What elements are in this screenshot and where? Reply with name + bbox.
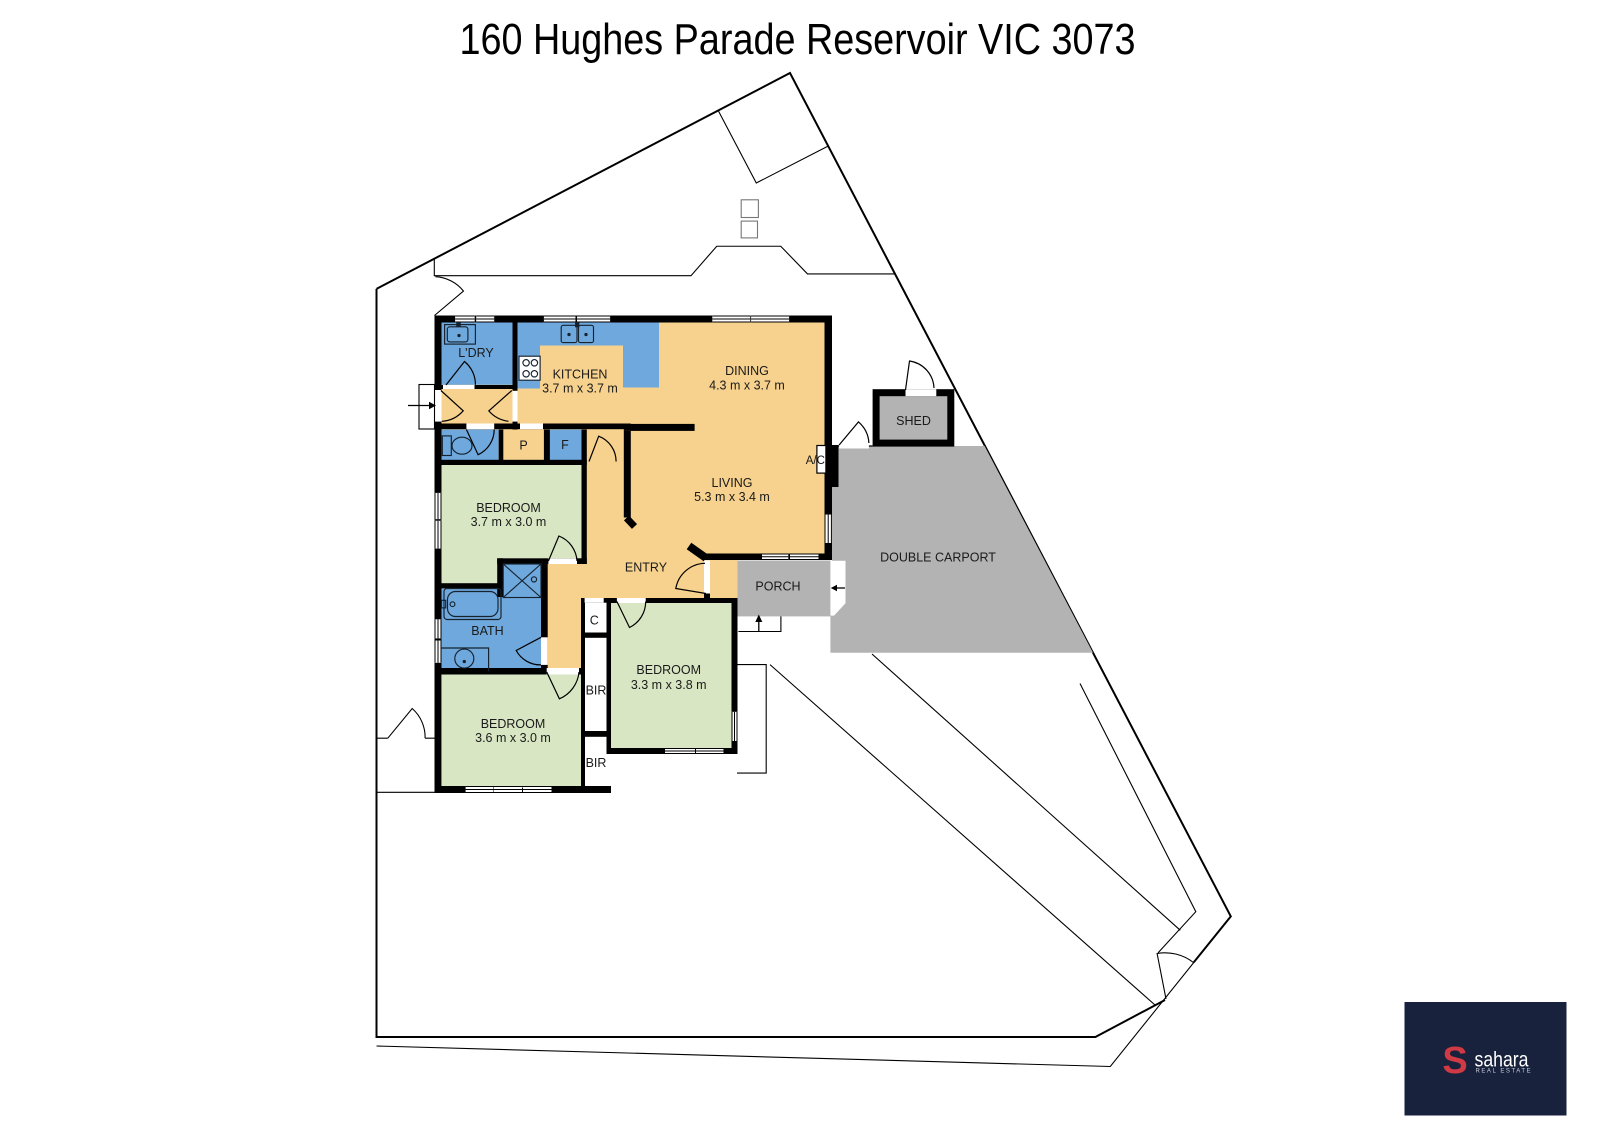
svg-text:KITCHEN: KITCHEN [553,368,608,382]
svg-text:BEDROOM: BEDROOM [636,663,701,677]
svg-text:ENTRY: ENTRY [625,561,668,575]
svg-text:SHED: SHED [896,414,931,428]
svg-text:DINING: DINING [725,364,769,378]
svg-text:F: F [561,438,569,452]
svg-text:LIVING: LIVING [712,476,753,490]
svg-text:BIR: BIR [586,756,607,770]
svg-text:BEDROOM: BEDROOM [476,501,541,515]
svg-text:PORCH: PORCH [755,580,800,594]
svg-text:3.7 m x 3.7 m: 3.7 m x 3.7 m [542,382,618,396]
svg-text:L'DRY: L'DRY [458,346,494,360]
svg-text:BATH: BATH [471,624,503,638]
svg-text:3.7 m x 3.0 m: 3.7 m x 3.0 m [471,515,547,529]
svg-text:BEDROOM: BEDROOM [481,717,546,731]
svg-text:S: S [1442,1040,1467,1082]
svg-text:160 Hughes Parade Reservoir VI: 160 Hughes Parade Reservoir VIC 3073 [460,15,1136,64]
svg-text:5.3 m x 3.4 m: 5.3 m x 3.4 m [694,490,770,504]
svg-text:REAL ESTATE: REAL ESTATE [1476,1069,1533,1075]
svg-text:BIR: BIR [586,684,607,698]
svg-text:A/C: A/C [806,455,825,467]
svg-text:4.3 m x 3.7 m: 4.3 m x 3.7 m [709,379,785,393]
svg-text:DOUBLE CARPORT: DOUBLE CARPORT [880,551,996,565]
svg-text:3.3 m x 3.8 m: 3.3 m x 3.8 m [631,678,707,692]
svg-text:P: P [519,439,527,453]
svg-text:3.6 m x 3.0 m: 3.6 m x 3.0 m [475,731,551,745]
svg-text:C: C [590,614,599,628]
